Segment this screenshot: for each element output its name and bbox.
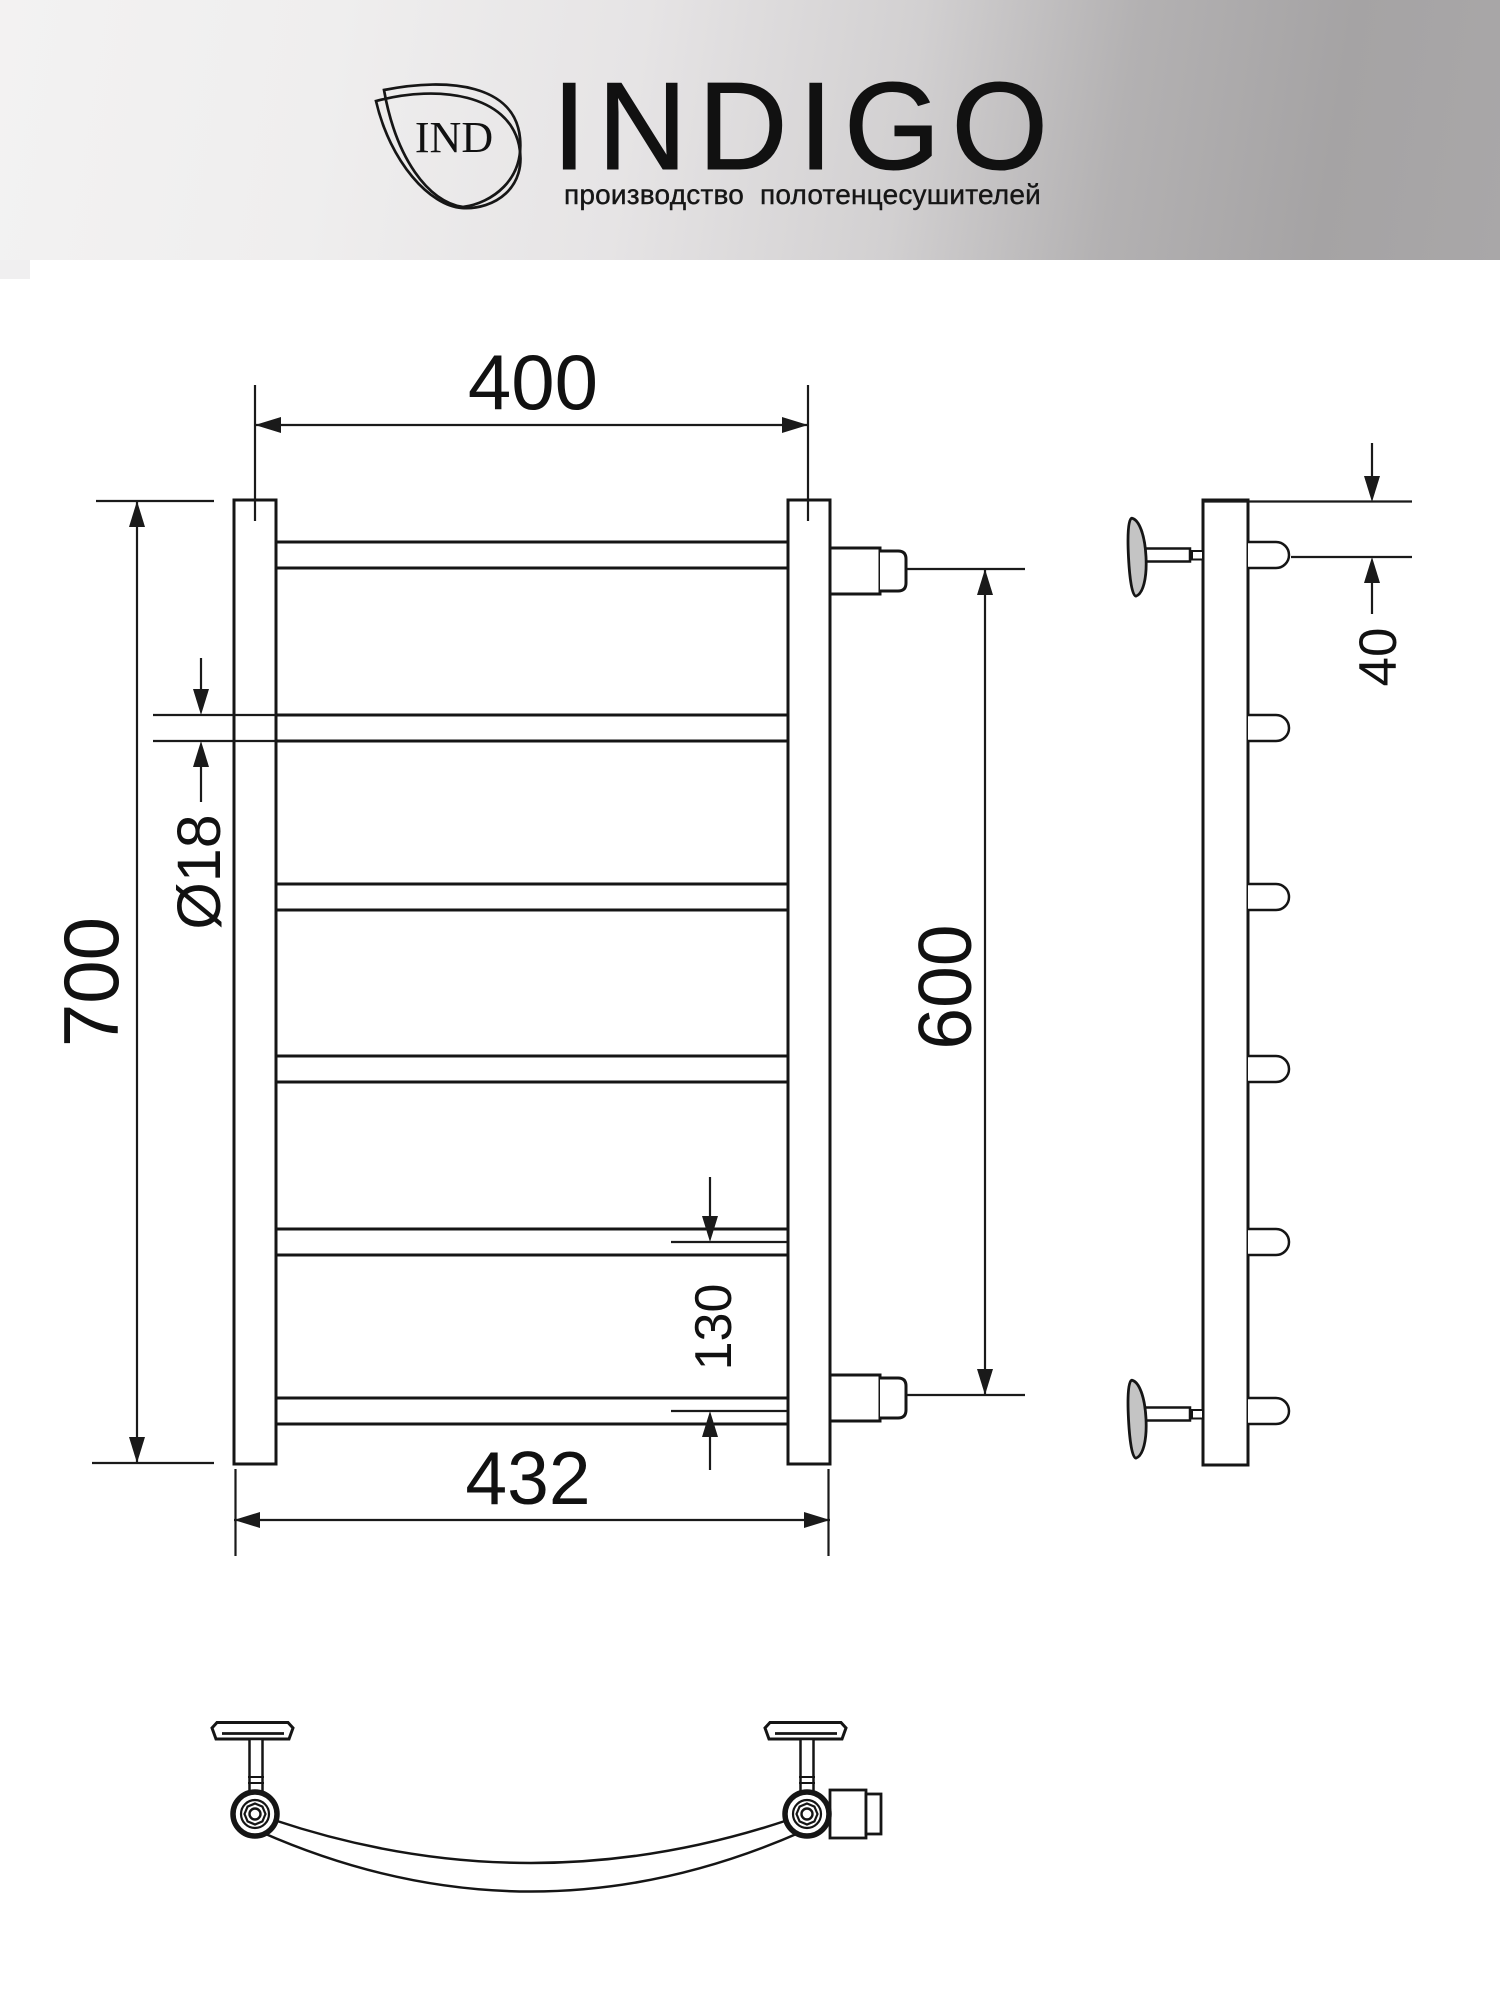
svg-text:Ø18: Ø18 [165,814,233,929]
svg-text:432: 432 [465,1436,590,1520]
svg-text:600: 600 [903,924,987,1049]
svg-text:130: 130 [685,1284,743,1371]
svg-text:400: 400 [468,338,598,426]
svg-text:40: 40 [1349,628,1408,687]
svg-text:700: 700 [47,917,135,1047]
